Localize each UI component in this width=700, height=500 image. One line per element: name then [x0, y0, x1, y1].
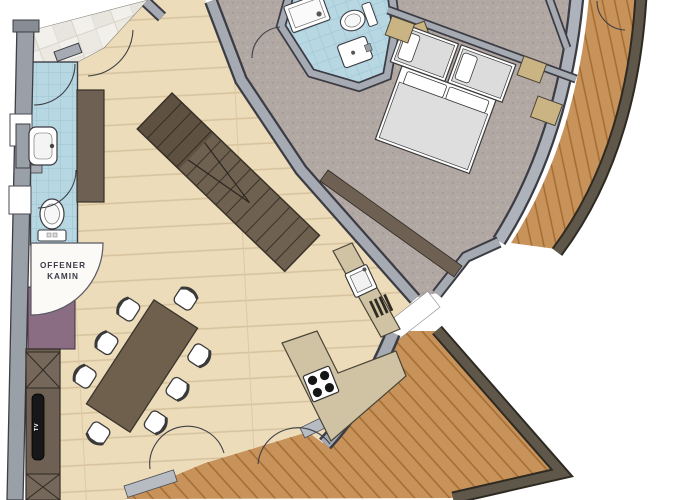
floor-plan: OFFENER KAMIN TV	[0, 0, 700, 500]
corridor-sink	[29, 127, 57, 165]
cabinet-x-top	[26, 352, 60, 388]
chimney-block	[77, 90, 104, 202]
corridor-divider-stub	[30, 165, 42, 173]
fireplace-label-line2: KAMIN	[47, 272, 79, 281]
cabinet-x-bottom	[26, 474, 60, 500]
left-wall-cap	[13, 20, 39, 32]
floor-plan-drawing: OFFENER KAMIN TV	[0, 0, 700, 500]
tv-label: TV	[34, 423, 40, 431]
sink-niche	[16, 124, 30, 168]
window-lower	[9, 186, 31, 214]
tv-cabinet: TV	[26, 349, 60, 500]
fireplace-label-line1: OFFENER	[40, 261, 86, 270]
